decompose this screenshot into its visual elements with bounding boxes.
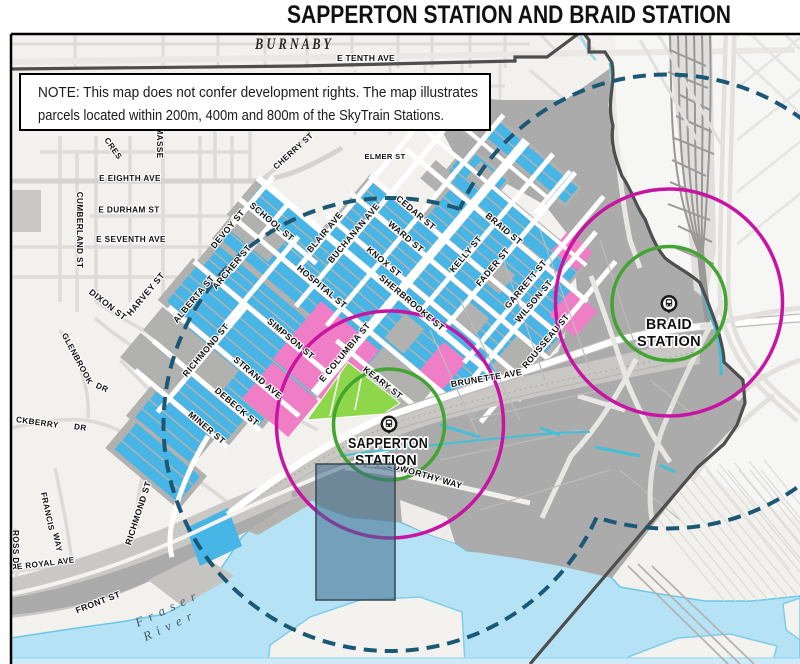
svg-text:MASSE: MASSE [155, 127, 164, 158]
svg-text:NOTE: This map does not confer: NOTE: This map does not confer developme… [38, 84, 478, 101]
svg-text:E TENTH AVE: E TENTH AVE [337, 54, 395, 63]
svg-text:SAPPERTON STATION AND BRAID ST: SAPPERTON STATION AND BRAID STATION [287, 1, 731, 29]
svg-text:E SEVENTH AVE: E SEVENTH AVE [96, 235, 166, 244]
svg-text:E DURHAM ST: E DURHAM ST [98, 206, 159, 215]
svg-text:SAPPERTON: SAPPERTON [348, 436, 428, 452]
svg-text:BRAID: BRAID [646, 317, 692, 333]
svg-text:ELMER ST: ELMER ST [364, 152, 405, 161]
svg-text:parcels located within 200m, 4: parcels located within 200m, 400m and 80… [38, 107, 444, 124]
svg-text:B U R N A B Y: B U R N A B Y [254, 36, 332, 53]
svg-text:STATION: STATION [637, 334, 701, 350]
svg-text:DR: DR [73, 422, 87, 433]
svg-text:CUMBERLAND ST: CUMBERLAND ST [75, 192, 84, 269]
svg-text:E EIGHTH AVE: E EIGHTH AVE [99, 174, 161, 183]
